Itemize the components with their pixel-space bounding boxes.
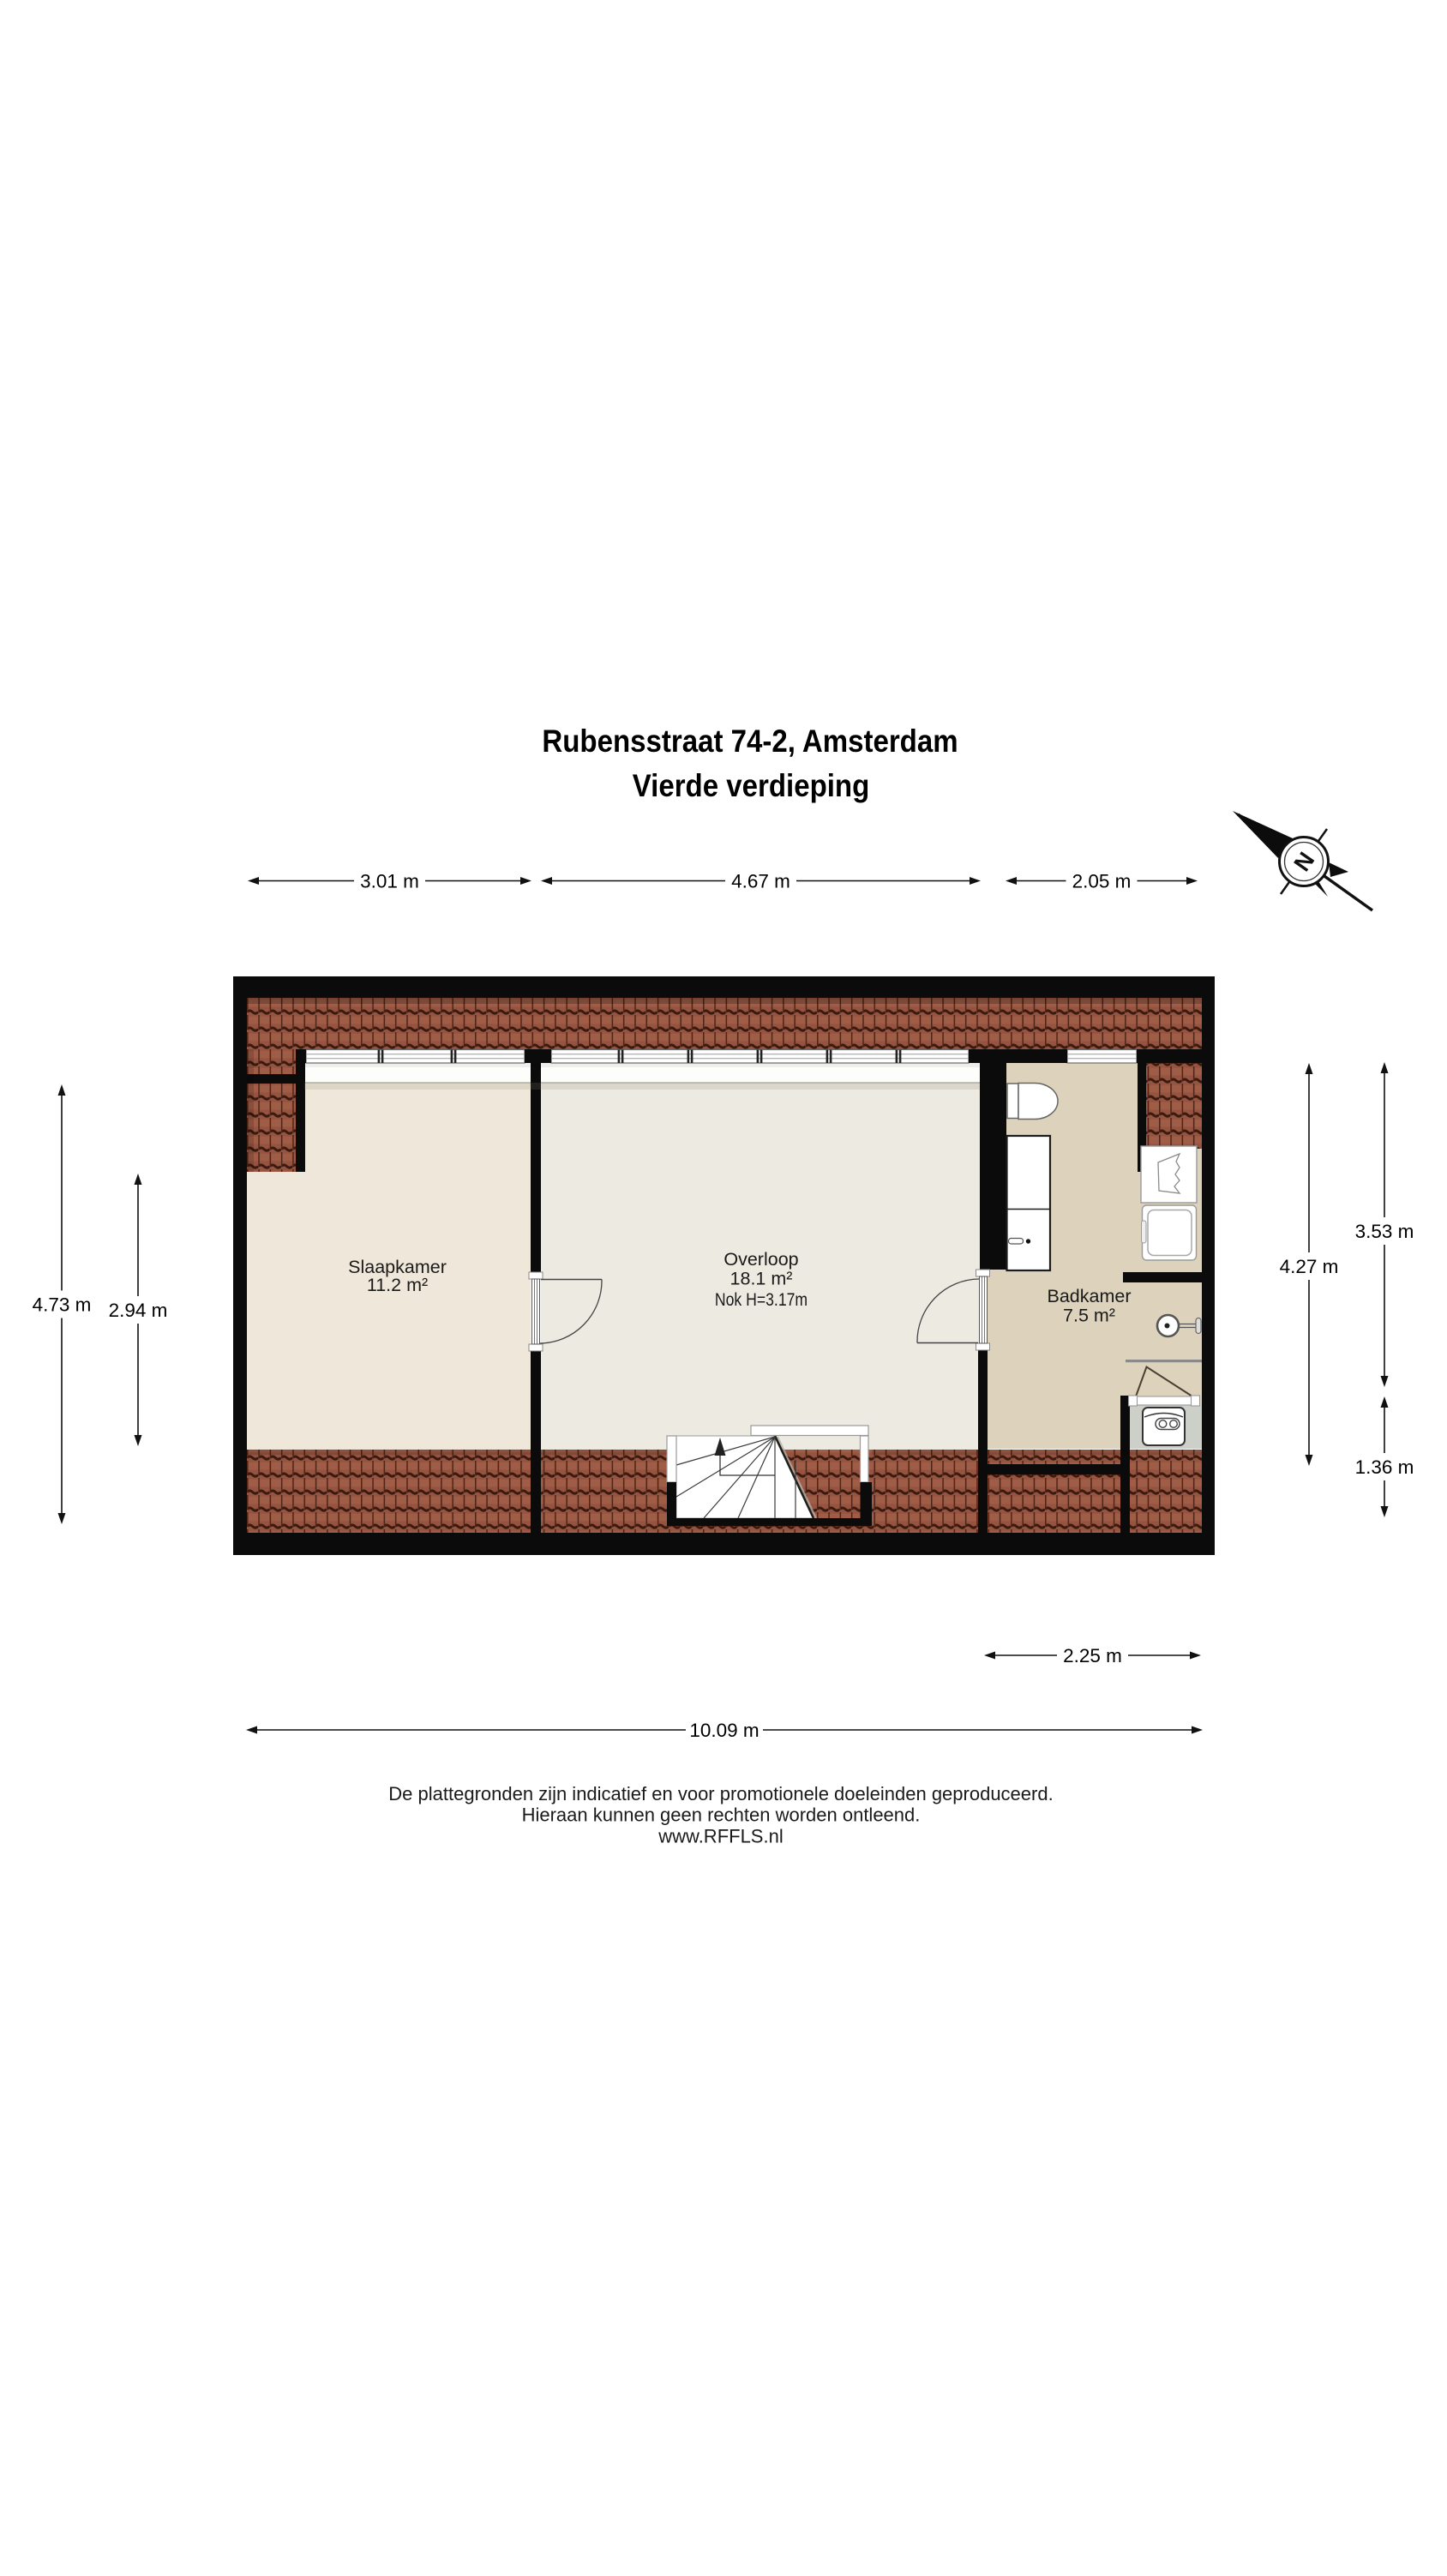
svg-text:Vierde verdieping: Vierde verdieping <box>633 768 870 803</box>
svg-text:2.94 m: 2.94 m <box>109 1300 168 1321</box>
svg-text:Rubensstraat 74-2, Amsterdam: Rubensstraat 74-2, Amsterdam <box>542 724 958 759</box>
svg-text:www.RFFLS.nl: www.RFFLS.nl <box>657 1826 783 1847</box>
svg-text:4.73 m: 4.73 m <box>33 1294 92 1316</box>
svg-text:10.09 m: 10.09 m <box>689 1720 759 1741</box>
svg-text:2.05 m: 2.05 m <box>1072 871 1132 892</box>
svg-text:3.53 m: 3.53 m <box>1355 1221 1414 1242</box>
svg-text:4.27 m: 4.27 m <box>1280 1256 1339 1277</box>
svg-text:De plattegronden zijn indicati: De plattegronden zijn indicatief en voor… <box>388 1783 1053 1804</box>
svg-text:Badkamer: Badkamer <box>1048 1286 1132 1306</box>
svg-text:Overloop: Overloop <box>723 1249 798 1270</box>
svg-text:7.5 m²: 7.5 m² <box>1063 1306 1115 1326</box>
svg-text:1.36 m: 1.36 m <box>1355 1456 1414 1478</box>
svg-text:3.01 m: 3.01 m <box>360 871 419 892</box>
svg-text:2.25 m: 2.25 m <box>1063 1645 1122 1666</box>
svg-text:11.2 m²: 11.2 m² <box>367 1275 428 1295</box>
svg-text:Nok H=3.17m: Nok H=3.17m <box>715 1290 808 1311</box>
svg-text:4.67 m: 4.67 m <box>731 871 790 892</box>
svg-text:Hieraan kunnen geen rechten wo: Hieraan kunnen geen rechten worden ontle… <box>522 1804 921 1826</box>
svg-text:18.1 m²: 18.1 m² <box>730 1269 793 1289</box>
